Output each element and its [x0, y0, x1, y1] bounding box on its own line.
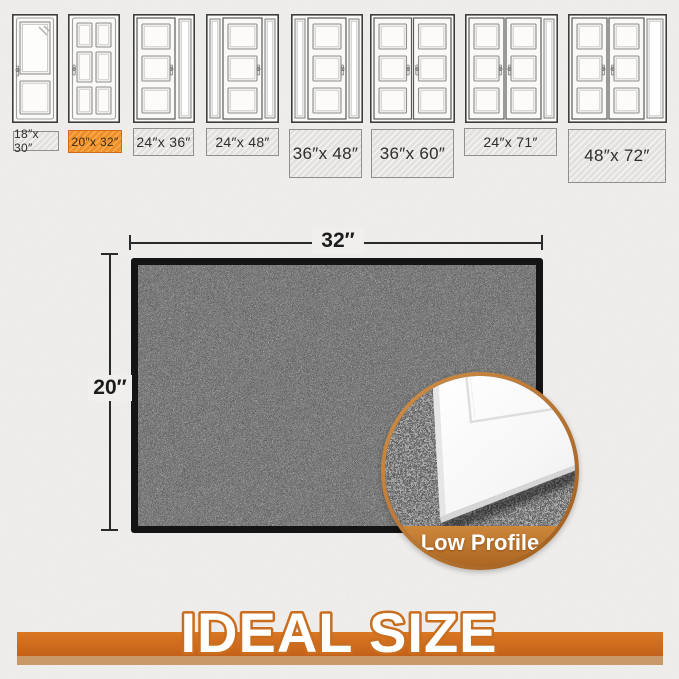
door-illustration-24x71: [465, 14, 558, 123]
door-illustration-18x30: [12, 14, 58, 123]
size-label-20x32-highlighted: 20″x 32″: [68, 130, 122, 153]
low-profile-inset-content: Low Profile: [385, 376, 575, 566]
height-dimension-label: 20″: [88, 375, 132, 401]
width-dimension-label: 32″: [312, 228, 364, 254]
low-profile-inset-badge: Low Profile: [381, 372, 579, 570]
size-label-36x60: 36″x 60″: [371, 129, 454, 178]
width-dimension-tick-left: [129, 235, 131, 250]
door-illustration-36x60: [370, 14, 455, 123]
door-illustration-24x48: [206, 14, 279, 123]
inset-caption-band: Low Profile: [385, 526, 575, 566]
size-label-24x71: 24″x 71″: [464, 128, 557, 156]
door-illustration-48x72: [568, 14, 667, 123]
inset-caption: Low Profile: [421, 530, 540, 556]
height-dimension-tick-top: [101, 253, 118, 255]
door-illustration-20x32: [68, 14, 120, 123]
size-label-18x30: 18″x 30″: [13, 131, 59, 151]
height-dimension-tick-bottom: [101, 529, 118, 531]
banner-title: IDEAL SIZE: [180, 601, 497, 664]
size-label-24x48: 24″x 48″: [206, 128, 279, 156]
size-label-36x48: 36″x 48″: [289, 129, 362, 178]
banner-title-art: IDEAL SIZE: [0, 596, 679, 668]
size-label-24x36: 24″x 36″: [133, 128, 194, 156]
door-illustration-24x36: [133, 14, 195, 123]
door-illustration-36x48: [291, 14, 363, 123]
product-size-guide-image: 18″x 30″ 20″x 32″ 24″x 36″ 24″x 48″ 36″x…: [0, 0, 679, 679]
size-label-48x72: 48″x 72″: [568, 129, 666, 183]
width-dimension-tick-right: [541, 235, 543, 250]
